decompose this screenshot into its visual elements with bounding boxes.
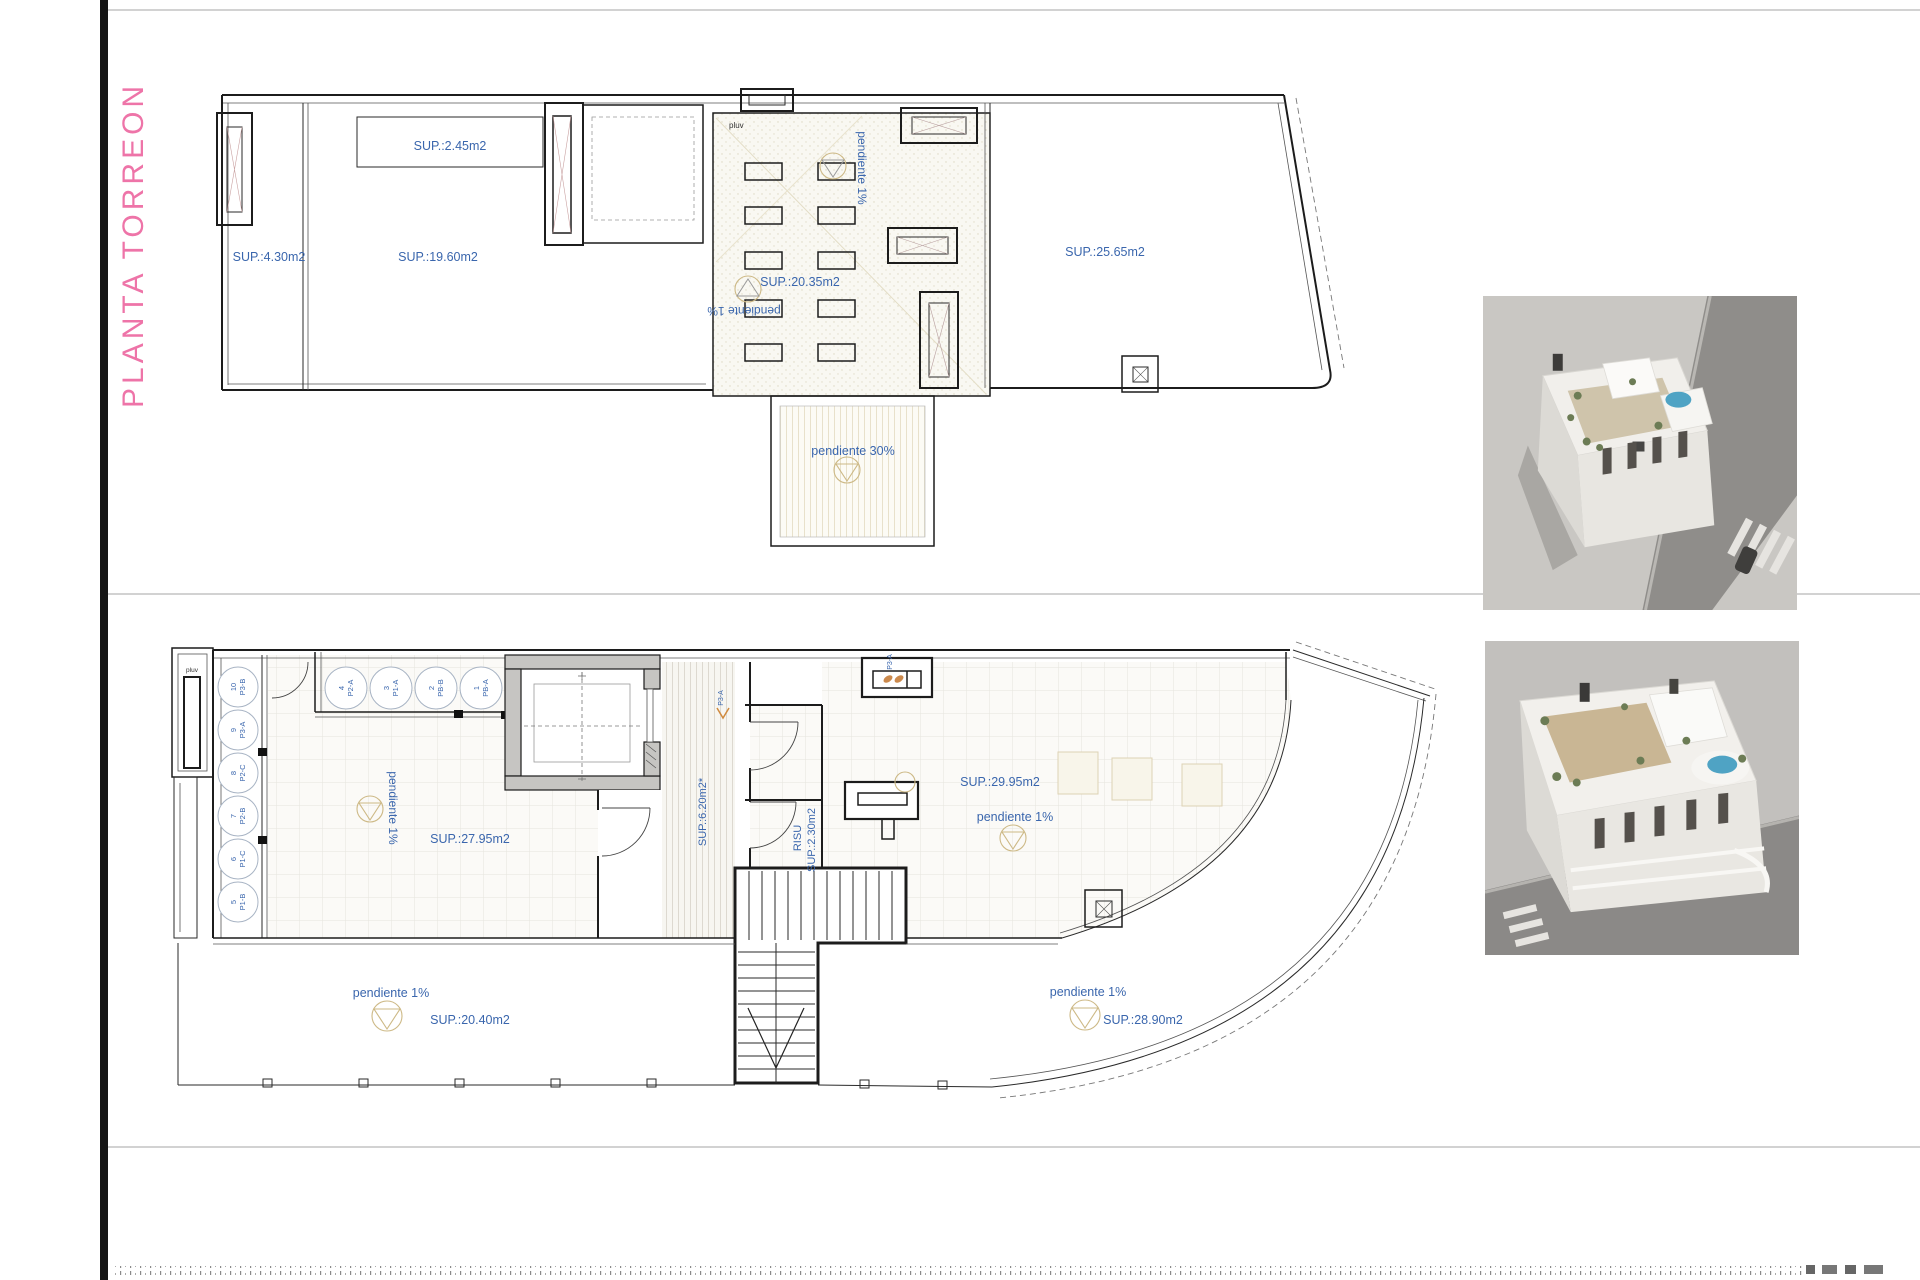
spot-code: P2-B [238, 808, 247, 825]
label-sup-20-35: SUP.:20.35m2 [760, 275, 840, 289]
spot-num: 2 [427, 686, 436, 690]
render-photo-bottom [1485, 641, 1799, 955]
render-photo-top [1483, 296, 1797, 610]
render-chimney [1580, 683, 1590, 702]
label-pendiente-30: pendiente 30% [811, 444, 894, 458]
label-sup-29-95: SUP.:29.95m2 [960, 775, 1040, 789]
spot-num: 5 [229, 900, 238, 904]
scale-strip [112, 1266, 1802, 1275]
spot-code: PB-B [436, 679, 445, 697]
label-pluv-roof: pluv [729, 121, 744, 130]
label-sup-2-45: SUP.:2.45m2 [414, 139, 487, 153]
spot-num: 8 [229, 771, 238, 775]
drawing-sheet: PLANTA TORREON [0, 0, 1920, 1280]
spot-code: P2-C [238, 764, 247, 782]
label-sup-19-60: SUP.:19.60m2 [398, 250, 478, 264]
upper-plan: pluv SUP.:2.45m2 SUP.:4.30m2 SUP.:19.60m… [217, 89, 1344, 546]
label-sup-27-95: SUP.:27.95m2 [430, 832, 510, 846]
render-jacuzzi [1665, 392, 1691, 408]
roof-skylight-block [583, 105, 703, 243]
spot-code: P3-B [238, 679, 247, 696]
lower-terraces [178, 938, 1062, 1089]
roof-window-block [545, 103, 583, 245]
spot-code: PB-A [481, 679, 490, 697]
vestibule [598, 790, 662, 938]
label-sup-4-30: SUP.:4.30m2 [233, 250, 306, 264]
elevator [505, 655, 660, 790]
spot-num: 3 [382, 686, 391, 690]
spot-code: P1-C [238, 850, 247, 868]
label-sup-25-65: SUP.:25.65m2 [1065, 245, 1145, 259]
spot-num: 6 [229, 857, 238, 861]
label-sup-28-90: SUP.:28.90m2 [1103, 1013, 1183, 1027]
label-sup-2-30: SUP.:2.30m2 [806, 808, 818, 872]
spot-code: P3-A [238, 722, 247, 739]
label-sup-6-20: SUP.:6.20m2* [697, 777, 709, 846]
spot-code: P1-B [238, 894, 247, 911]
terrace-chimney: pluv [172, 648, 213, 938]
lower-plan: pluv 10 P3-B 9 P3-A [172, 642, 1438, 1098]
render-jacuzzi [1707, 756, 1737, 774]
sheet-frame [100, 0, 1920, 1280]
label-pendiente-1-upper-left: pendiente 1% [386, 771, 400, 845]
spot-code: P2-A [346, 680, 355, 697]
label-pendiente-1-lower-left: pendiente 1% [353, 986, 429, 1000]
svg-text:P3-A: P3-A [718, 690, 725, 706]
label-wall-unit-tag: P3-A [887, 654, 894, 670]
roof-ramp-block [771, 396, 934, 546]
floor-plan-drawing: PLANTA TORREON [0, 0, 1920, 1280]
spot-num: 1 [472, 686, 481, 690]
spot-num: 4 [337, 686, 346, 690]
label-pendiente-1-vertical: pendiente 1% [855, 131, 869, 205]
spot-num: 10 [229, 683, 238, 691]
page-title: PLANTA TORREON [117, 82, 150, 408]
label-pendiente-1-lower-right: pendiente 1% [1050, 985, 1126, 999]
label-pendiente-1-inverted: pendiente 1% [707, 304, 781, 318]
label-pluv-terrace: pluv [186, 667, 199, 674]
label-sup-20-40: SUP.:20.40m2 [430, 1013, 510, 1027]
spot-code: P1-A [391, 680, 400, 697]
label-risu: RISU [792, 825, 804, 851]
label-pendiente-1-upper-right: pendiente 1% [977, 810, 1053, 824]
spot-num: 7 [229, 814, 238, 818]
stairs [735, 868, 906, 1083]
spot-num: 9 [229, 728, 238, 732]
render-chimney [1553, 354, 1563, 371]
terrace-wall-unit-top: P3-A [862, 654, 932, 697]
